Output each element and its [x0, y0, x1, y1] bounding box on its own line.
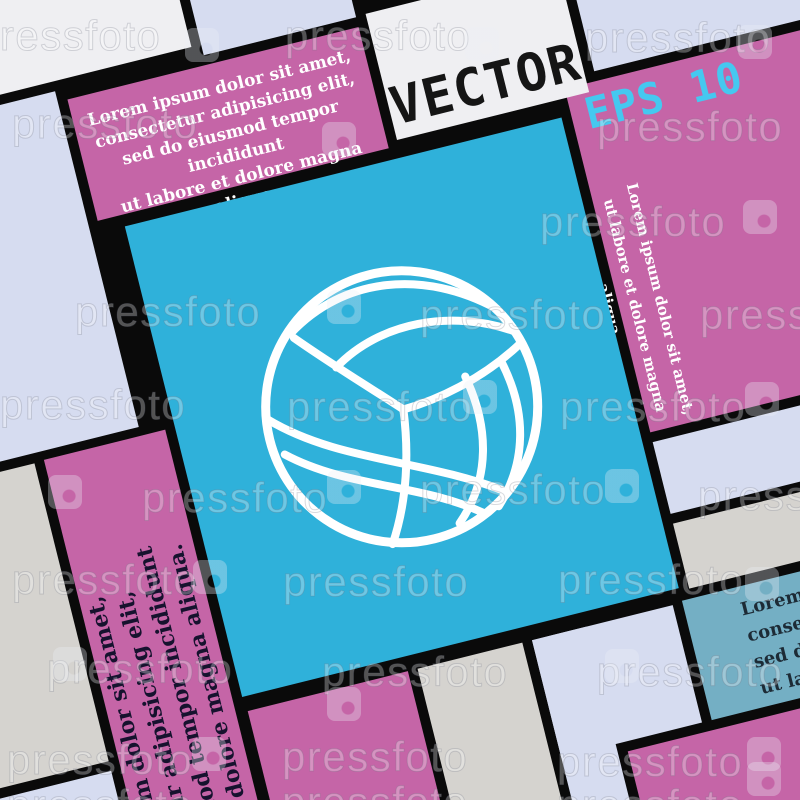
tile-mosaic: Lorem ipsum dolor sit amet,consectetur a…	[0, 0, 800, 800]
stock-image-preview: Lorem ipsum dolor sit amet,consectetur a…	[0, 0, 800, 800]
volleyball-icon	[220, 225, 584, 589]
